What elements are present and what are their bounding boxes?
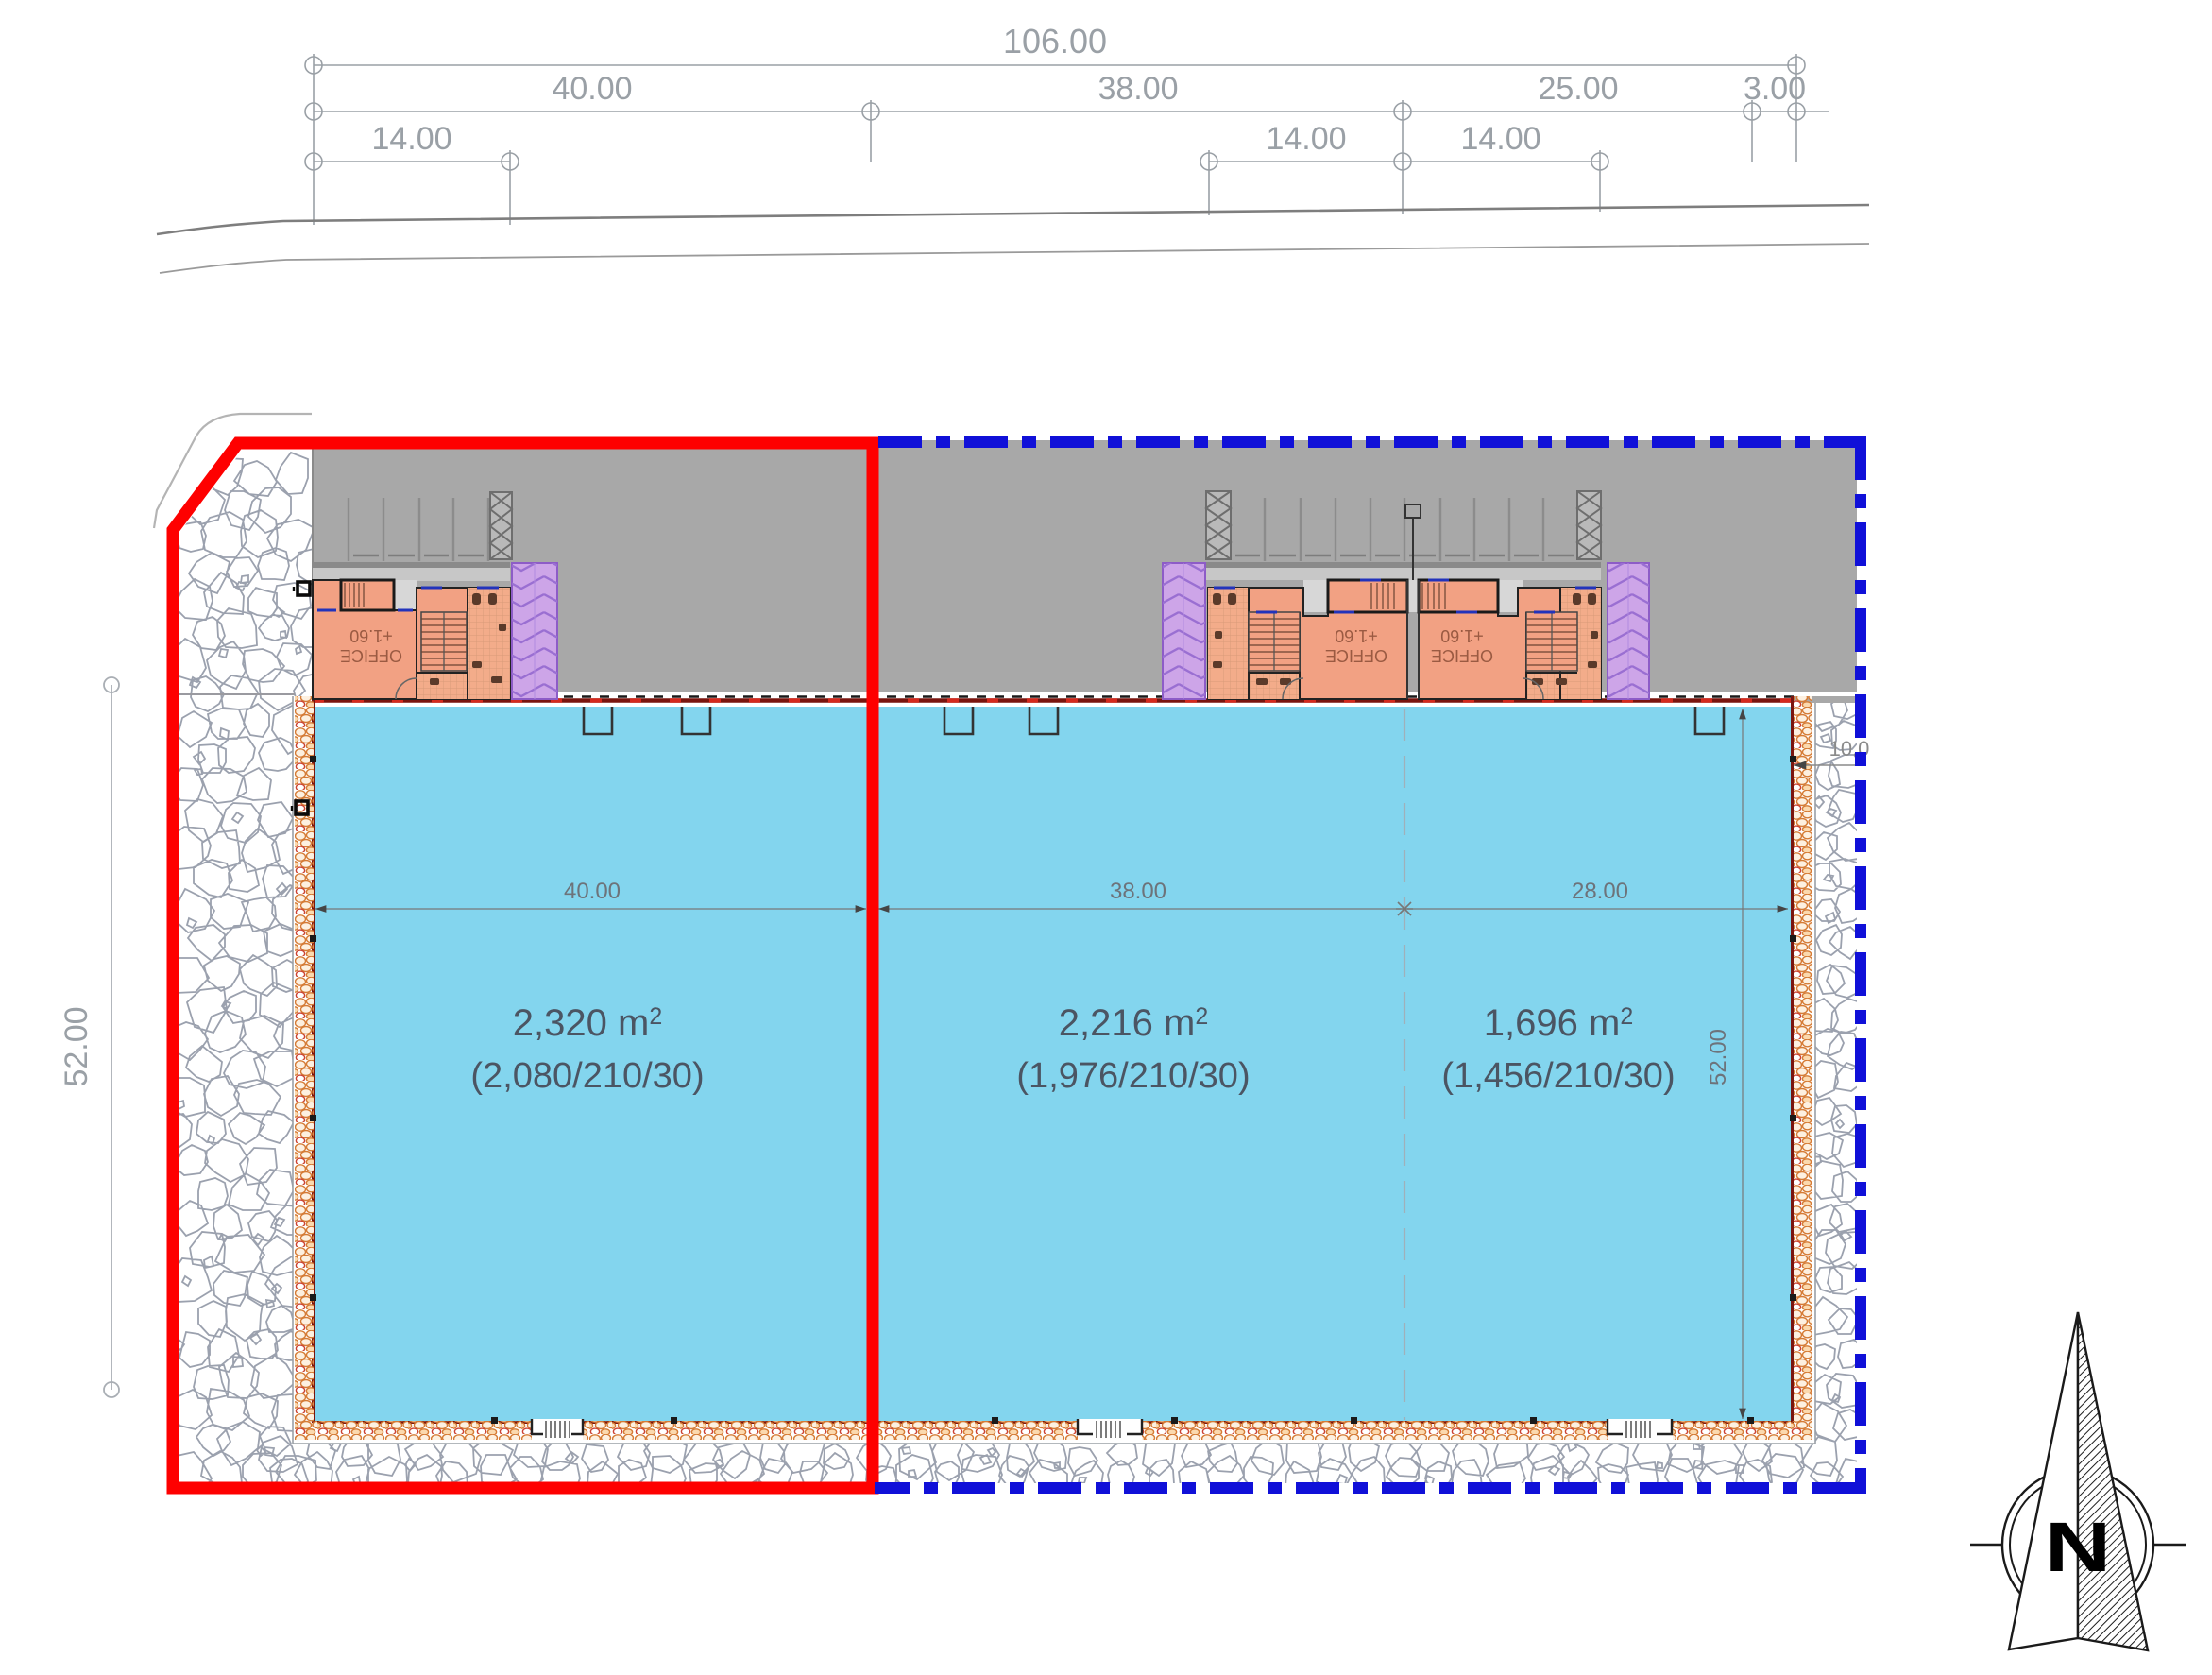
svg-text:OFFICE: OFFICE [1325,646,1387,665]
svg-text:OFFICE: OFFICE [340,646,402,665]
svg-text:38.00: 38.00 [1110,879,1166,904]
svg-text:106.00: 106.00 [1003,22,1107,60]
svg-text:+1.60: +1.60 [349,626,393,645]
svg-text:2,216 m2: 2,216 m2 [1059,1002,1208,1044]
svg-text:25.00: 25.00 [1538,71,1618,107]
svg-text:28.00: 28.00 [1572,879,1628,904]
svg-text:+1.60: +1.60 [1335,626,1378,645]
svg-text:(2,080/210/30): (2,080/210/30) [470,1056,704,1096]
svg-text:40.00: 40.00 [564,879,621,904]
svg-text:OFFICE: OFFICE [1431,646,1493,665]
svg-text:(1,976/210/30): (1,976/210/30) [1016,1056,1250,1096]
svg-text:14.00: 14.00 [1460,121,1540,157]
svg-text:+1.60: +1.60 [1440,626,1484,645]
svg-text:40.00: 40.00 [552,71,632,107]
svg-text:14.00: 14.00 [1266,121,1346,157]
svg-text:38.00: 38.00 [1097,71,1178,107]
svg-text:N: N [2045,1509,2112,1586]
svg-text:52.00: 52.00 [1706,1029,1731,1085]
svg-text:1,696 m2: 1,696 m2 [1484,1002,1633,1044]
svg-text:(1,456/210/30): (1,456/210/30) [1441,1056,1675,1096]
svg-text:3.00: 3.00 [1744,71,1806,107]
svg-text:14.00: 14.00 [371,121,451,157]
svg-text:52.00: 52.00 [59,1006,94,1086]
svg-text:2,320 m2: 2,320 m2 [513,1002,662,1044]
